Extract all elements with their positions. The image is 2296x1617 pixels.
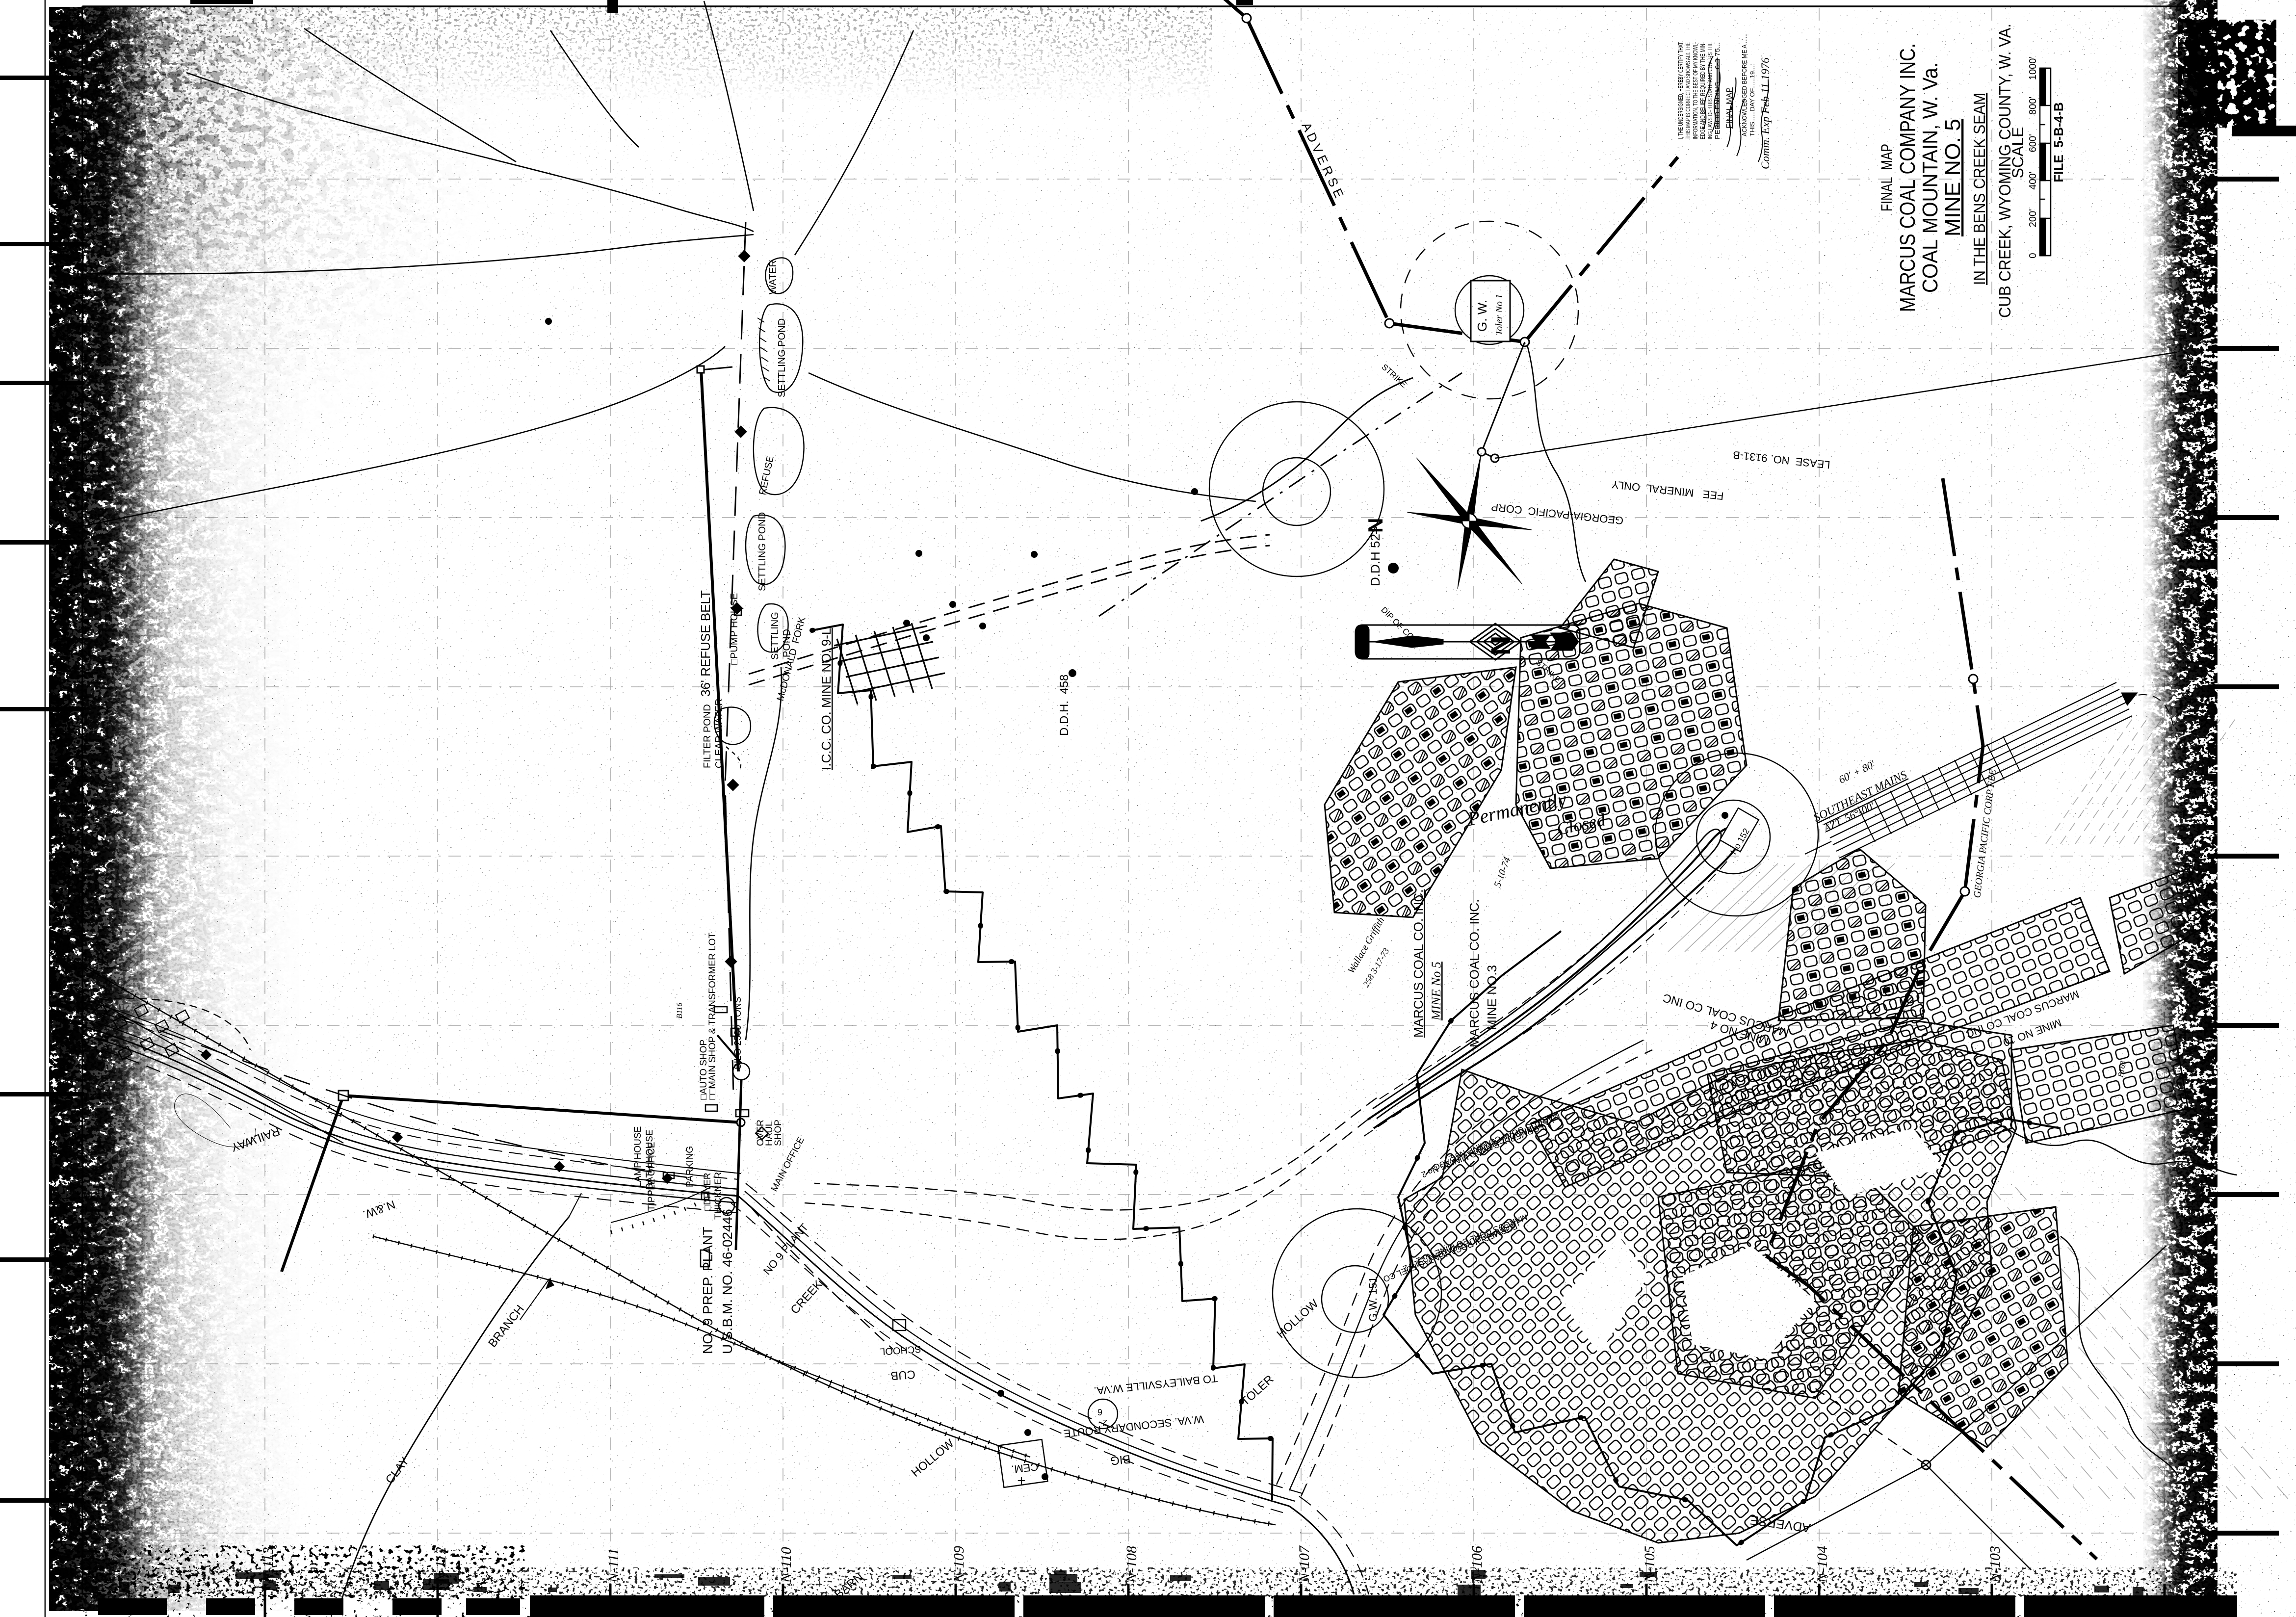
svg-text:CLEAR WATER: CLEAR WATER <box>714 699 725 768</box>
svg-text:N-106: N-106 <box>1469 1546 1485 1583</box>
svg-text:W-47: W-47 <box>2182 352 2196 379</box>
svg-text:INFORMATION, TO THE BEST OF MY: INFORMATION, TO THE BEST OF MY KNOWL- <box>1692 42 1699 139</box>
svg-text:N-113: N-113 <box>260 1547 276 1583</box>
svg-text:□□MAIN SHOP & TRANSFORMER LOT: □□MAIN SHOP & TRANSFORMER LOT <box>707 933 718 1100</box>
svg-text:ACKNOWLEDGED BEFORE ME A .....: ACKNOWLEDGED BEFORE ME A ...... <box>1741 33 1748 136</box>
svg-text:6: 6 <box>1097 1407 1102 1417</box>
svg-text:D.D.H. 458: D.D.H. 458 <box>1058 675 1071 736</box>
svg-text:CUB: CUB <box>890 1367 915 1382</box>
svg-text:Comm. Exp Feb 11 1976: Comm. Exp Feb 11 1976 <box>1759 57 1772 169</box>
svg-text:1000': 1000' <box>2028 56 2038 80</box>
svg-text:EDGE AND BELIEF, REQUIRED BY T: EDGE AND BELIEF, REQUIRED BY THE MIN- <box>1699 42 1706 139</box>
svg-text:W-51: W-51 <box>2182 1029 2196 1056</box>
svg-text:36' REFUSE BELT: 36' REFUSE BELT <box>698 590 713 697</box>
svg-text:B116: B116 <box>676 1003 684 1019</box>
svg-text:N-104: N-104 <box>1814 1546 1830 1583</box>
svg-text:FILTER POND: FILTER POND <box>702 704 713 768</box>
svg-text:MINE NO. 5: MINE NO. 5 <box>1941 119 1965 236</box>
svg-text:LAMP HOUSE: LAMP HOUSE <box>633 1126 643 1187</box>
svg-text:ING LAWS OF THIS STATE AND COV: ING LAWS OF THIS STATE AND COVERS THE <box>1707 42 1714 139</box>
svg-text:MARCUS COAL CO. INC.: MARCUS COAL CO. INC. <box>1467 899 1482 1047</box>
svg-text:W-50: W-50 <box>2182 860 2196 887</box>
svg-text:W-52: W-52 <box>2182 1199 2196 1226</box>
svg-text:THIS MAP IS CORRECT AND SHOWS: THIS MAP IS CORRECT AND SHOWS ALL THE <box>1685 42 1692 139</box>
svg-text:SHOP: SHOP <box>773 1120 783 1146</box>
svg-text:FINAL MAP: FINAL MAP <box>1878 144 1896 211</box>
svg-text:G.W. 151: G.W. 151 <box>1367 1277 1379 1322</box>
svg-text:0: 0 <box>2028 253 2038 258</box>
svg-text:D.D.H 52–: D.D.H 52– <box>1368 526 1383 586</box>
svg-text:MINE No 5: MINE No 5 <box>1429 962 1443 1021</box>
svg-text:MARCUS COAL COMPANY INC.: MARCUS COAL COMPANY INC. <box>1896 43 1920 312</box>
svg-text:N-111: N-111 <box>605 1548 622 1583</box>
svg-text:THIS......DAY OF......19....: THIS......DAY OF......19.... <box>1748 64 1756 136</box>
svg-text:N-107: N-107 <box>1296 1545 1312 1583</box>
svg-text:I, THE UNDERSIGNED, HEREBY CER: I, THE UNDERSIGNED, HEREBY CERTIFY THAT <box>1677 42 1684 139</box>
svg-text:W-46: W-46 <box>2182 183 2196 210</box>
svg-text:○BATH HOUSE: ○BATH HOUSE <box>645 1129 655 1195</box>
svg-text:□DRYER: □DRYER <box>703 1173 713 1211</box>
svg-text:N-109: N-109 <box>951 1546 967 1583</box>
svg-text:N-105: N-105 <box>1642 1546 1658 1583</box>
svg-text:2: 2 <box>1102 1418 1107 1428</box>
svg-text:PERIOD ENDING......6-3-75...: PERIOD ENDING......6-3-75... <box>1714 42 1721 139</box>
svg-text:MARCUS COAL CO. INC.: MARCUS COAL CO. INC. <box>1411 889 1426 1038</box>
svg-text:W-53: W-53 <box>2182 1368 2196 1395</box>
svg-text:200': 200' <box>2028 209 2038 227</box>
svg-text:600': 600' <box>2028 134 2038 152</box>
svg-text:I.C.C. CO. MINE NO. 9-L: I.C.C. CO. MINE NO. 9-L <box>819 628 834 770</box>
svg-text:PARKING: PARKING <box>685 1146 695 1187</box>
svg-text:W-49: W-49 <box>2182 691 2196 718</box>
svg-text:POND: POND <box>782 629 792 657</box>
svg-text:N-110: N-110 <box>778 1547 794 1583</box>
svg-text:FILE 5-B-4-B: FILE 5-B-4-B <box>2051 102 2066 182</box>
svg-text:MINE NO.3: MINE NO.3 <box>1485 965 1499 1030</box>
svg-text:SETTLING POND: SETTLING POND <box>757 512 768 591</box>
svg-text:U.S.B.M. NO. 46-02446: U.S.B.M. NO. 46-02446 <box>720 1209 735 1354</box>
svg-text:N-103: N-103 <box>1987 1546 2003 1583</box>
svg-text:SCALE: SCALE <box>2009 127 2027 179</box>
svg-text:□PUMP HOUSE: □PUMP HOUSE <box>729 593 740 665</box>
svg-text:SILO 2500 TONS: SILO 2500 TONS <box>733 997 743 1069</box>
svg-text:N-112: N-112 <box>433 1547 449 1583</box>
svg-text:IN THE BENS CREEK SEAM: IN THE BENS CREEK SEAM <box>1970 93 1988 285</box>
svg-text:THICKNER: THICKNER <box>713 1172 724 1220</box>
svg-text:FINAL MAP: FINAL MAP <box>1725 87 1734 129</box>
svg-text:SETTLING: SETTLING <box>770 612 781 660</box>
svg-text:+: + <box>1017 1473 1026 1489</box>
svg-text:WATER: WATER <box>768 260 779 294</box>
svg-text:W-48: W-48 <box>2182 522 2196 548</box>
svg-text:NO. 9 PREP. PLANT: NO. 9 PREP. PLANT <box>700 1227 715 1354</box>
svg-text:SETTLING POND: SETTLING POND <box>777 318 787 397</box>
svg-text:N-108: N-108 <box>1123 1546 1140 1583</box>
svg-text:400': 400' <box>2028 172 2038 190</box>
svg-text:BIG: BIG <box>1110 1452 1131 1467</box>
svg-text:COAL MOUNTAIN, W. Va.: COAL MOUNTAIN, W. Va. <box>1918 62 1942 293</box>
svg-text:800': 800' <box>2028 97 2038 115</box>
